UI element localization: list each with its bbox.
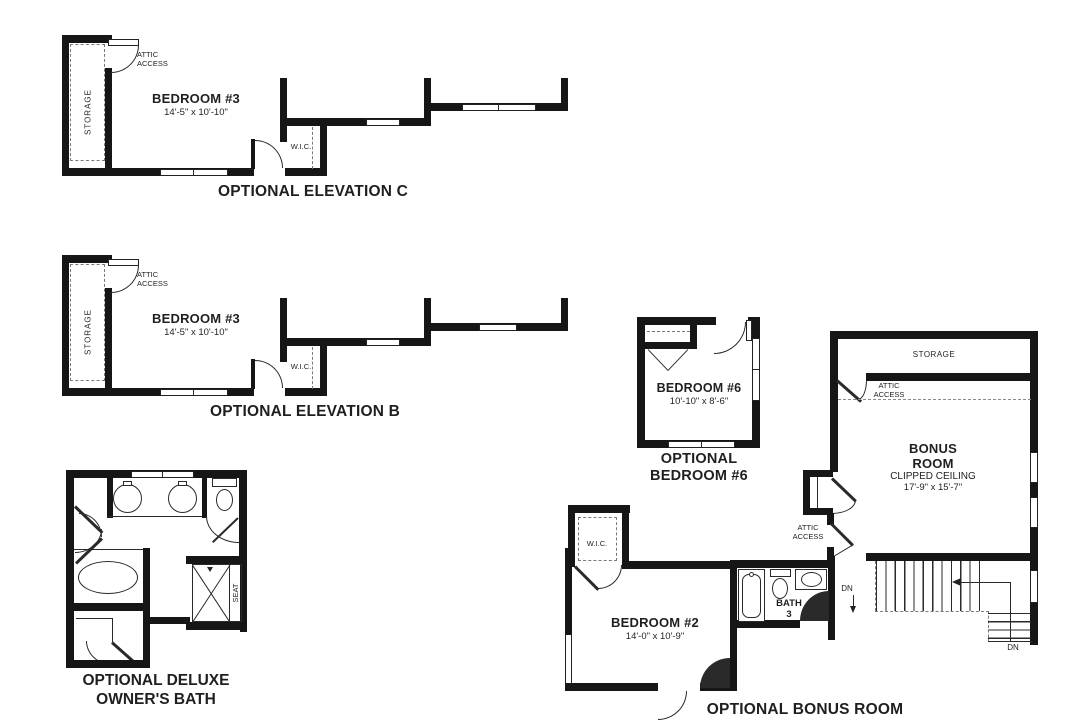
wall-segment [105, 68, 112, 168]
toilet-room-door-arc [206, 516, 239, 543]
stairs-upper-run [876, 561, 988, 611]
room-name: BEDROOM #6 [657, 381, 742, 395]
thin-line [817, 477, 818, 508]
room-name: BEDROOM #2 [611, 615, 699, 630]
storage-label: STORAGE [84, 309, 93, 355]
thin-line [112, 618, 113, 642]
room-name: BEDROOM #3 [152, 91, 240, 106]
toilet-tank [770, 569, 791, 577]
shower-head-icon [207, 567, 213, 572]
wall-segment [561, 78, 568, 111]
bifold-door [648, 349, 669, 371]
wall-segment [62, 255, 112, 263]
room-name: BONUSROOM [909, 441, 957, 471]
bifold-door [668, 349, 689, 371]
wall-segment [280, 78, 287, 126]
wic-label: W.I.C. [291, 143, 311, 152]
thin-line [162, 472, 163, 477]
wall-segment [565, 683, 658, 691]
wall-segment [830, 385, 838, 472]
stair-arrow-head [952, 578, 961, 586]
wall-segment [866, 373, 1038, 381]
wall-segment [66, 660, 150, 668]
sink [168, 484, 197, 513]
wall-segment [186, 556, 247, 564]
door-arc [79, 513, 102, 537]
bath3-label: BATH3 [776, 598, 802, 620]
toilet-bowl [216, 489, 233, 511]
thin-line [753, 369, 759, 370]
stair-direction-line [961, 582, 1011, 583]
faucet [178, 481, 187, 486]
bedroom6-door-arc [714, 322, 746, 354]
room-name: BEDROOM #3 [152, 311, 240, 326]
wall-segment [143, 548, 150, 610]
closet-door-arc [832, 500, 856, 514]
attic2-door-leaf [833, 544, 854, 557]
wall-segment [280, 346, 287, 362]
wall-segment [866, 553, 1038, 561]
wall-segment [66, 470, 74, 668]
thin-line [76, 618, 113, 619]
wic-label: W.I.C. [587, 540, 607, 549]
room-dims: 14'-5" x 10'-10" [164, 327, 228, 338]
attic2-door-leaf [830, 522, 854, 546]
wall-segment [830, 331, 1038, 339]
stair-rail-dashed [875, 561, 876, 611]
wall-segment [424, 298, 431, 346]
window [366, 119, 400, 126]
bonus-room-caption: OPTIONAL BONUS ROOM [707, 701, 903, 719]
wall-segment [568, 505, 630, 513]
wall-segment [622, 561, 737, 569]
wic-rod-line [312, 347, 313, 389]
attic-door-arc [111, 265, 139, 293]
seat-label: SEAT [231, 583, 240, 602]
tub-drain [749, 572, 754, 577]
wall-segment [62, 255, 69, 396]
bathtub-inner [742, 574, 761, 618]
elevation-c-caption: OPTIONAL ELEVATION C [218, 183, 408, 201]
dn-label: DN [1007, 643, 1019, 652]
attic-access-label: ATTICACCESS [137, 271, 168, 288]
wall-segment [62, 35, 69, 176]
bath3-door-arc [800, 591, 829, 621]
wall-segment [622, 513, 629, 565]
wall-segment [280, 126, 287, 142]
room-dims: 17'-9" x 15'-7" [904, 482, 962, 493]
clipped-ceiling-line [838, 399, 1031, 400]
window [1030, 452, 1038, 483]
bedroom6-caption: OPTIONAL BEDROOM #6 [650, 451, 748, 484]
wall-segment [287, 338, 430, 346]
wall-segment [637, 317, 716, 325]
window [1030, 570, 1038, 603]
wic-door-leaf [574, 565, 599, 590]
floor-plan-sheet: STORAGE ATTICACCESS BEDROOM #3 14'-5" x … [0, 0, 1080, 720]
wall-segment [645, 342, 697, 349]
thin-line [193, 390, 194, 395]
dn-arrow-head [850, 606, 856, 613]
closet-shelf-line [647, 331, 690, 332]
wall-segment [830, 331, 838, 385]
wall-segment [143, 617, 190, 624]
bedroom3-door-arc [255, 140, 283, 168]
wall-segment [280, 298, 287, 346]
wall-segment [320, 338, 327, 396]
thin-line [701, 442, 702, 447]
wall-segment [105, 288, 112, 388]
thin-line [74, 549, 144, 550]
room-dims: 10'-10" x 8'-6" [670, 396, 728, 407]
toilet-tank [212, 478, 237, 487]
owners-bath-caption: OPTIONAL DELUXE OWNER'S BATH [61, 671, 251, 704]
wall-segment [186, 622, 247, 630]
wall-segment [320, 118, 327, 176]
attic-access-label: ATTICACCESS [137, 51, 168, 68]
sink [801, 572, 822, 587]
wic-label: W.I.C. [291, 363, 311, 372]
sink [113, 484, 142, 513]
wall-segment [561, 298, 568, 331]
stair-direction-line [1010, 583, 1011, 641]
wall-segment [202, 478, 207, 518]
vanity-counter [107, 516, 202, 517]
room-dims: 14'-5" x 10'-10" [164, 107, 228, 118]
window [1030, 497, 1038, 528]
window [366, 339, 400, 346]
window [565, 634, 572, 684]
dn-label: DN [841, 584, 853, 593]
attic-door-arc [111, 45, 139, 73]
exterior-door-arc [658, 691, 687, 720]
thin-line [193, 170, 194, 175]
elevation-b-caption: OPTIONAL ELEVATION B [210, 403, 400, 421]
storage-label: STORAGE [84, 89, 93, 135]
wic-rod-line [312, 127, 313, 169]
wall-segment [828, 556, 835, 640]
toilet-bowl [772, 578, 788, 599]
oval-bathtub [78, 561, 138, 594]
thin-line [498, 105, 499, 110]
attic-access-label: ATTICACCESS [874, 382, 905, 399]
attic-door-arc [858, 380, 867, 400]
closet-door-leaf [831, 477, 857, 502]
wall-segment [424, 78, 431, 126]
wall-segment [62, 35, 112, 43]
stair-rail-dashed [875, 611, 989, 612]
faucet [123, 481, 132, 486]
wall-segment [239, 470, 247, 563]
attic-access-label: ATTICACCESS [793, 524, 824, 541]
wall-segment [730, 560, 835, 568]
bedroom3-door-arc [255, 360, 283, 388]
wic-door-arc [598, 565, 622, 589]
bedroom2-entry-door-arc [700, 658, 730, 688]
wall-segment [287, 118, 430, 126]
ceiling-note: CLIPPED CEILING [890, 471, 976, 482]
storage-label: STORAGE [913, 350, 955, 359]
room-dims: 14'-0" x 10'-9" [626, 631, 684, 642]
window [479, 324, 517, 331]
wall-segment [637, 317, 645, 448]
wall-segment [66, 603, 150, 611]
